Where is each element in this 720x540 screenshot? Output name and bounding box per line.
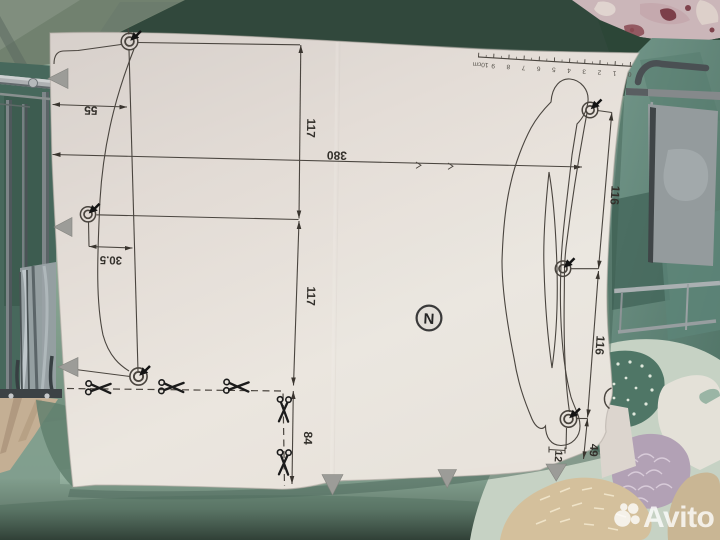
svg-text:12: 12 — [552, 450, 565, 463]
svg-text:Avito: Avito — [643, 501, 715, 534]
svg-text:380: 380 — [326, 148, 347, 163]
svg-text:55: 55 — [84, 103, 98, 117]
svg-text:10cm: 10cm — [472, 60, 488, 68]
svg-text:49: 49 — [587, 443, 600, 457]
svg-text:116: 116 — [607, 185, 622, 206]
svg-text:117: 117 — [304, 118, 319, 138]
svg-text:30.5: 30.5 — [99, 253, 122, 266]
svg-text:116: 116 — [592, 335, 607, 356]
svg-text:84: 84 — [301, 431, 315, 445]
svg-text:N: N — [423, 309, 435, 327]
svg-text:117: 117 — [304, 286, 319, 306]
